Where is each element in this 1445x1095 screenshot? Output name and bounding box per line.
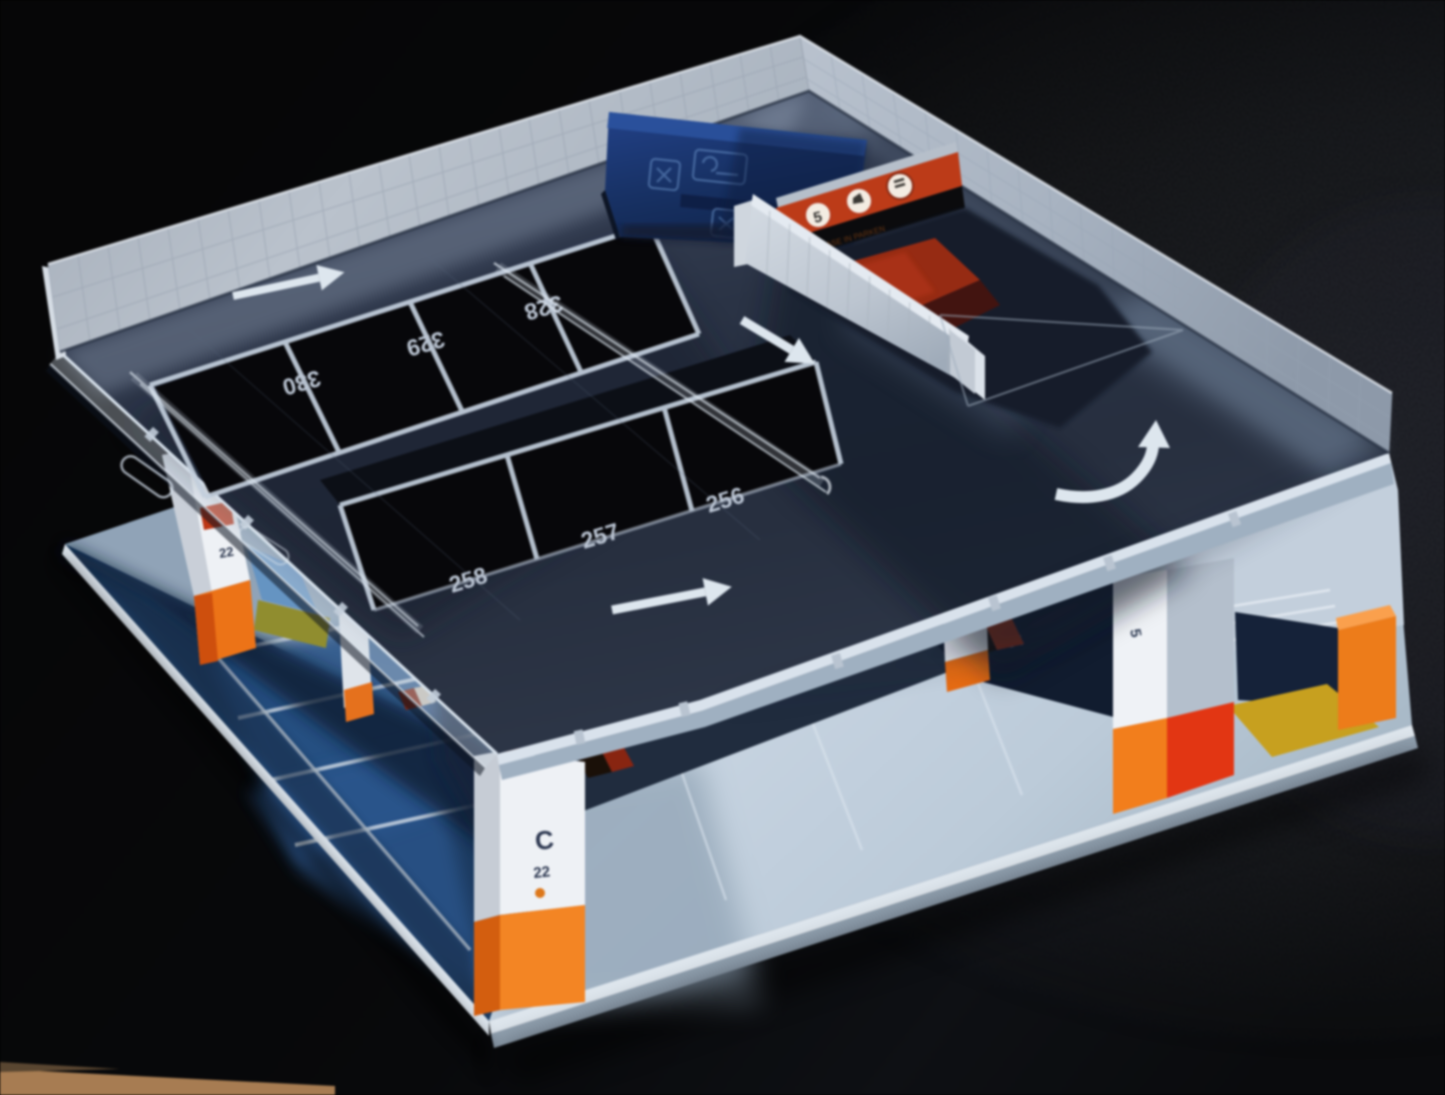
svg-text:22: 22 xyxy=(218,544,235,561)
svg-text:22: 22 xyxy=(533,863,551,882)
svg-text:C: C xyxy=(533,824,555,856)
